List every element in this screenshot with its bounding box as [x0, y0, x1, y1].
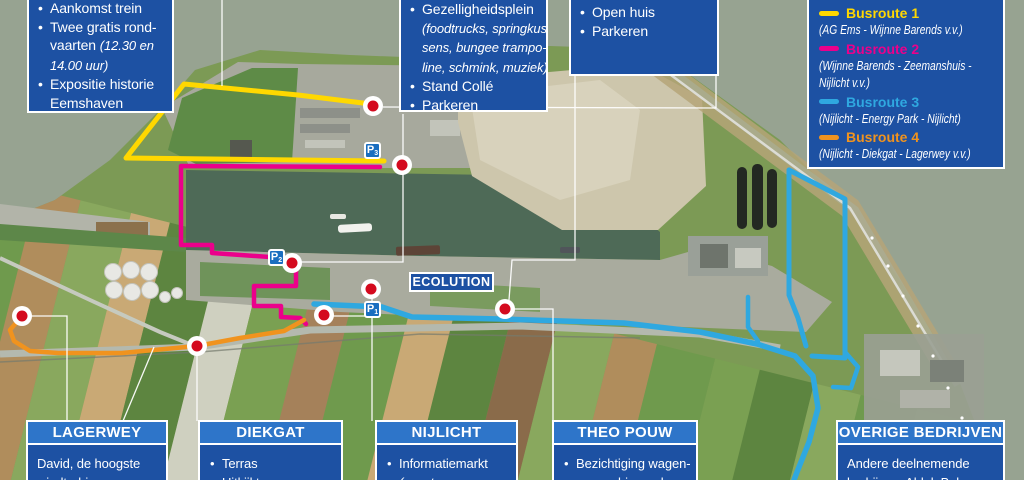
- text-line: Gezelligheidsplein: [409, 0, 538, 19]
- text-line: Bezichtiging wagen-: [563, 454, 689, 473]
- text-line: Stand Collé: [409, 77, 538, 96]
- poi-marker: [12, 306, 32, 326]
- parking-letter: P: [271, 252, 278, 263]
- poi-marker: [314, 305, 334, 325]
- text-line: Informatiemarkt: [386, 454, 509, 473]
- overige-bedrijven-box: OVERIGE BEDRIJVEN Andere deelnemendebedr…: [836, 420, 1005, 480]
- text-line: vaarten (12.30 en: [37, 36, 164, 56]
- open-huis-info-box: Open huisParkeren: [569, 0, 719, 76]
- parking-letter: P: [367, 145, 374, 156]
- route-name: Busroute 3: [846, 94, 919, 110]
- ecolution-label: ECOLUTION: [409, 272, 494, 292]
- station-info-list: Aankomst treinTwee gratis rond-vaarten (…: [37, 0, 164, 112]
- station-info-box: Aankomst treinTwee gratis rond-vaarten (…: [27, 0, 174, 113]
- route-name: Busroute 4: [846, 129, 919, 145]
- open-huis-info-list: Open huisParkeren: [579, 3, 709, 40]
- legend-route: Busroute 2(Wijnne Barends - Zeemanshuis …: [819, 40, 993, 93]
- text-line: 14.00 uur): [37, 56, 164, 76]
- energy-park-block: [900, 390, 950, 408]
- power-plant-block: [700, 244, 728, 268]
- gezelligheidsplein-info-list: Gezelligheidsplein(foodtrucks, springkus…: [409, 0, 538, 112]
- container-yard: [305, 140, 345, 148]
- parking-2-icon: P2: [268, 249, 285, 266]
- coal-pile: [737, 167, 747, 229]
- legend-route: Busroute 3(Nijlicht - Energy Park - Nijl…: [819, 93, 993, 129]
- nijlicht-box: NIJLICHT Informatiemarkt(vacatures van: [375, 420, 518, 480]
- poi-marker: [282, 253, 302, 273]
- overige-bedrijven-list: Andere deelnemendebedrijven: Aldel, Bob: [847, 454, 996, 480]
- tug-boat: [560, 247, 580, 253]
- text-line: (vacatures van: [386, 473, 509, 480]
- power-plant-block: [735, 248, 761, 268]
- route-description: (Nijlicht - Diekgat - Lagerwey v.v.): [819, 146, 962, 164]
- overige-bedrijven-title: OVERIGE BEDRIJVEN: [838, 422, 1003, 445]
- text-line: sens, bungee trampo-: [409, 38, 538, 58]
- text-line: Aankomst trein: [37, 0, 164, 18]
- text-line: Uitkijktoren: [209, 473, 334, 480]
- poi-marker: [187, 336, 207, 356]
- parking-3-icon: P3: [364, 142, 381, 159]
- parking-number: 2: [278, 257, 282, 264]
- route-dash-icon: [819, 99, 839, 104]
- coal-pile: [752, 164, 763, 230]
- legend-route: Busroute 4(Nijlicht - Diekgat - Lagerwey…: [819, 128, 993, 164]
- route-dash-icon: [819, 11, 839, 16]
- text-line: David, de hoogste: [37, 454, 159, 473]
- text-line: en machinepark: [563, 473, 689, 480]
- diekgat-list: TerrasUitkijktoren: [209, 454, 334, 480]
- theo-pouw-title: THEO POUW: [554, 422, 696, 445]
- text-line: Parkeren: [409, 96, 538, 113]
- diekgat-box: DIEKGAT TerrasUitkijktoren: [198, 420, 343, 480]
- gezelligheidsplein-info-box: Gezelligheidsplein(foodtrucks, springkus…: [399, 0, 548, 112]
- energy-park-block: [930, 360, 964, 382]
- diekgat-title: DIEKGAT: [200, 422, 341, 445]
- lagerwey-list: David, de hoogstewindturbine: [37, 454, 159, 480]
- warehouse: [430, 120, 460, 136]
- small-boat: [330, 214, 346, 219]
- text-line: windturbine: [37, 473, 159, 480]
- parking-number: 3: [374, 150, 378, 157]
- text-line: Twee gratis rond-: [37, 18, 164, 37]
- text-line: Terras: [209, 454, 334, 473]
- poi-marker: [495, 299, 515, 319]
- route-description: (AG Ems - Wijnne Barends v.v.): [819, 22, 962, 40]
- poi-marker: [363, 96, 383, 116]
- text-line: (foodtrucks, springkus-: [409, 19, 538, 39]
- text-line: Eemshaven: [37, 94, 164, 113]
- route-description: (Wijnne Barends - Zeemanshuis -: [819, 58, 962, 76]
- route-description: (Nijlicht - Energy Park - Nijlicht): [819, 111, 962, 129]
- route-dash-icon: [819, 135, 839, 140]
- text-line: Andere deelnemende: [847, 454, 996, 473]
- text-line: Expositie historie: [37, 75, 164, 94]
- coal-pile: [767, 169, 777, 228]
- lagerwey-title: LAGERWEY: [28, 422, 166, 445]
- text-line: bedrijven: Aldel, Bob: [847, 473, 996, 480]
- route-name: Busroute 2: [846, 41, 919, 57]
- parking-1-icon: P1: [364, 301, 381, 318]
- busroute-legend: Busroute 1(AG Ems - Wijnne Barends v.v.)…: [807, 0, 1005, 169]
- warehouse: [230, 140, 252, 158]
- parking-letter: P: [367, 304, 374, 315]
- lagerwey-box: LAGERWEY David, de hoogstewindturbine: [26, 420, 168, 480]
- quay-grass: [200, 262, 330, 300]
- text-line: Parkeren: [579, 22, 709, 41]
- nijlicht-list: Informatiemarkt(vacatures van: [386, 454, 509, 480]
- parking-number: 1: [374, 309, 378, 316]
- nijlicht-title: NIJLICHT: [377, 422, 516, 445]
- container-yard: [300, 108, 360, 118]
- text-line: line, schmink, muziek): [409, 58, 538, 78]
- theo-pouw-list: Bezichtiging wagen-en machinepark: [563, 454, 689, 480]
- route-dash-icon: [819, 46, 839, 51]
- text-line: Open huis: [579, 3, 709, 22]
- eemshaven-open-day-map: P3 P2 P1 ECOLUTION Aankomst treinTwee gr…: [0, 0, 1024, 480]
- theo-pouw-box: THEO POUW Bezichtiging wagen-en machinep…: [552, 420, 698, 480]
- container-yard: [300, 124, 350, 133]
- poi-marker: [392, 155, 412, 175]
- energy-park-block: [880, 350, 920, 376]
- poi-marker: [361, 279, 381, 299]
- route-description: Nijlicht v.v.): [819, 75, 962, 93]
- legend-route: Busroute 1(AG Ems - Wijnne Barends v.v.): [819, 4, 993, 40]
- route-name: Busroute 1: [846, 5, 919, 21]
